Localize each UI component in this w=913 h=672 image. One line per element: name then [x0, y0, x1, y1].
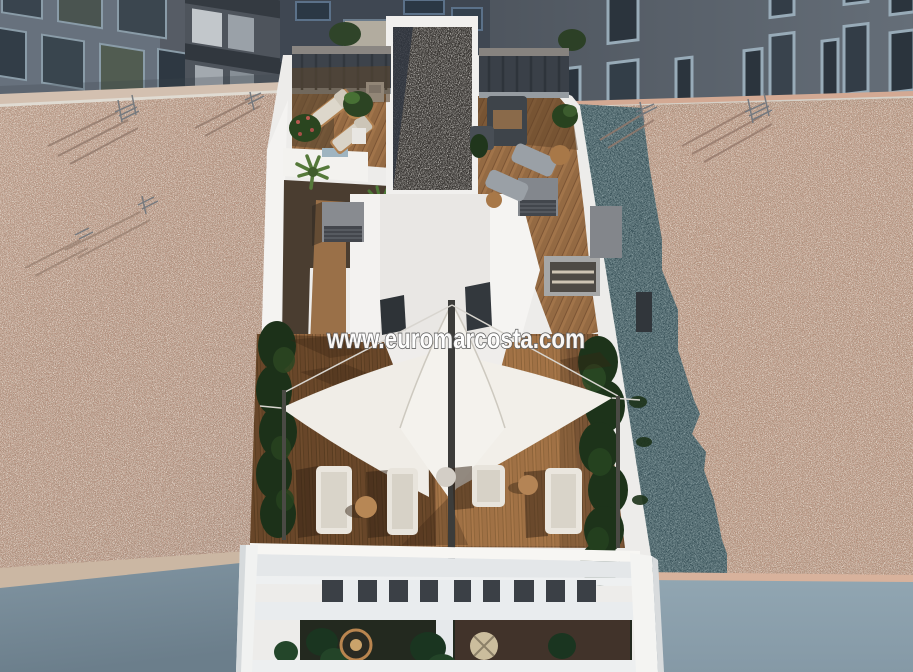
svg-text:www.euromarcosta.com: www.euromarcosta.com — [326, 323, 585, 354]
